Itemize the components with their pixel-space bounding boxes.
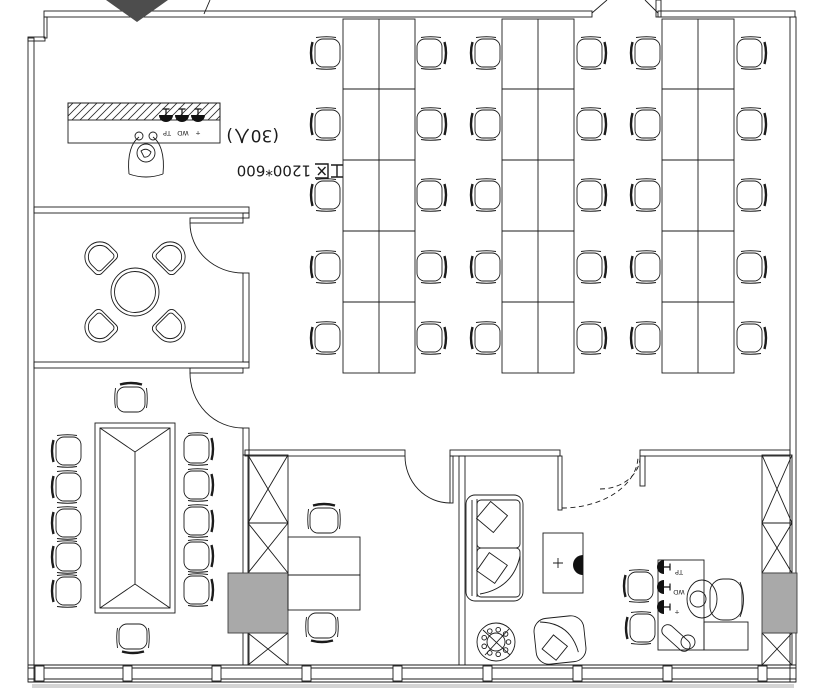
bottom-wall-shadow — [32, 684, 794, 688]
bottom-wall-window-band — [28, 665, 796, 682]
capacity-open-text: (30 — [251, 125, 279, 145]
outlet-plus-icon — [657, 600, 670, 614]
exec-door-stub — [640, 456, 645, 486]
structural-column — [228, 573, 288, 633]
office-chair — [631, 322, 660, 355]
conference-chair — [184, 505, 213, 538]
cjk-qu-glyph — [315, 164, 328, 178]
top-entry-door — [592, 0, 661, 17]
meeting-room-bottom-wall — [34, 362, 249, 368]
office-chair — [471, 322, 500, 355]
meeting-room-door-arc — [190, 223, 243, 273]
outlet-label: WD — [673, 588, 684, 596]
office-door-leaf — [450, 456, 453, 503]
table-decor — [573, 555, 583, 575]
office-chair — [631, 251, 660, 284]
office-chair — [417, 108, 446, 141]
cabinet-strip-left — [248, 455, 288, 665]
workstation-bank-1 — [343, 19, 415, 373]
office-divider-wall — [459, 456, 465, 665]
office-chair — [417, 251, 446, 284]
conference-chair — [52, 541, 81, 574]
wall-stub — [243, 428, 249, 455]
floor-outlet-symbols-desk: TP WD + — [657, 560, 685, 616]
conference-chair — [184, 469, 213, 502]
pillow — [477, 553, 508, 584]
floor-plan: TP WD + 1200*600 (30 ) — [0, 0, 826, 690]
meeting-room-door-leaf — [190, 218, 243, 223]
office-chair — [737, 179, 766, 212]
conference-table — [95, 423, 175, 613]
conference-chair — [184, 433, 213, 466]
exec-chair — [687, 579, 744, 620]
sofa — [466, 495, 523, 601]
cjk-ren-glyph — [236, 129, 249, 143]
meeting-room-right-wall — [243, 273, 249, 362]
structural-column — [762, 573, 797, 633]
conference-chair — [184, 540, 213, 573]
door-jamb — [656, 0, 661, 17]
office-chair — [737, 108, 766, 141]
workstation-banks — [343, 19, 734, 373]
outlet-tp-icon — [657, 560, 670, 574]
office-room — [288, 504, 360, 642]
conference-chair — [117, 624, 150, 653]
office-chair — [417, 179, 446, 212]
conference-door-arc — [190, 373, 243, 428]
office-chair — [306, 613, 339, 642]
pillow — [477, 502, 508, 533]
potted-plant — [477, 623, 515, 661]
outlet-label: + — [674, 608, 679, 616]
conference-chair — [52, 435, 81, 468]
guest-chair — [624, 570, 653, 603]
exec-door-dashed-arc — [562, 457, 638, 508]
top-left-corner-post — [44, 17, 47, 38]
floor-outlet-symbols-reception: TP WD + — [159, 109, 205, 137]
workzone-size-text: 1200*600 — [237, 162, 311, 180]
outlet-label: + — [195, 129, 200, 137]
office-chair — [471, 108, 500, 141]
office-row-wall-mid — [450, 450, 560, 456]
workzone-label: 1200*600 — [237, 162, 343, 180]
pillow — [542, 635, 567, 660]
office-chair — [311, 37, 340, 70]
wall-stub — [243, 213, 249, 218]
office-chair — [631, 108, 660, 141]
office-chair — [577, 251, 606, 284]
capacity-close-text: ) — [226, 125, 233, 145]
office-chair — [471, 37, 500, 70]
desk-phone — [659, 622, 695, 654]
tub-chair — [79, 236, 120, 277]
round-table — [111, 268, 159, 316]
outlet-label: WD — [177, 129, 188, 137]
tub-chair — [79, 307, 120, 348]
outlet-label: TP — [675, 568, 684, 576]
reception-person — [129, 132, 164, 177]
conference-chair — [52, 507, 81, 540]
office-chair — [311, 108, 340, 141]
exec-door-leaf — [558, 456, 562, 510]
office-chair — [737, 251, 766, 284]
office-chair — [311, 251, 340, 284]
guest-chair — [626, 612, 655, 645]
conference-chair — [52, 575, 81, 608]
workstation-bank-3 — [662, 19, 734, 373]
capacity-label: (30 ) — [226, 125, 279, 145]
floor-plan-svg: TP WD + 1200*600 (30 ) — [0, 0, 826, 690]
exec-door-dashed-arc — [600, 458, 640, 489]
conference-chair — [52, 471, 81, 504]
office-chair — [577, 37, 606, 70]
office-chair — [631, 179, 660, 212]
armchair — [533, 615, 588, 666]
coffee-table — [543, 533, 583, 593]
conference-door-leaf — [190, 368, 243, 373]
office-chair — [631, 37, 660, 70]
conference-chair — [115, 383, 148, 412]
tub-chair — [150, 236, 191, 277]
office-chair — [737, 37, 766, 70]
outlet-label: TP — [163, 129, 172, 137]
office-chair — [311, 179, 340, 212]
desk — [288, 575, 360, 610]
office-chair — [577, 179, 606, 212]
workstation-bank-2 — [502, 19, 574, 373]
office-chair — [471, 179, 500, 212]
meeting-room — [79, 236, 192, 349]
left-wall — [28, 38, 34, 682]
office-chair — [308, 504, 341, 533]
tub-chair — [150, 307, 191, 348]
meeting-room-top-wall — [34, 207, 249, 213]
round-table-inner — [115, 272, 156, 313]
door-swing-arc — [592, 0, 607, 13]
leader-line — [204, 0, 210, 14]
cabinet-strip-right — [762, 455, 792, 665]
office-chair — [577, 322, 606, 355]
office-chair — [471, 251, 500, 284]
conference-chair — [184, 574, 213, 607]
outlet-wd-icon — [657, 580, 670, 594]
side-table — [704, 622, 748, 650]
conference-room — [52, 383, 213, 653]
desk — [288, 537, 360, 575]
office-chair — [737, 322, 766, 355]
exec-room: TP WD + — [466, 495, 748, 665]
cjk-gong-glyph — [331, 165, 343, 177]
office-chair — [417, 37, 446, 70]
reception-area: TP WD + — [68, 103, 220, 177]
office-chair — [311, 322, 340, 355]
office-chair — [577, 108, 606, 141]
office-chair — [417, 322, 446, 355]
office-door-arc — [405, 456, 450, 503]
top-wall-right — [658, 11, 795, 17]
